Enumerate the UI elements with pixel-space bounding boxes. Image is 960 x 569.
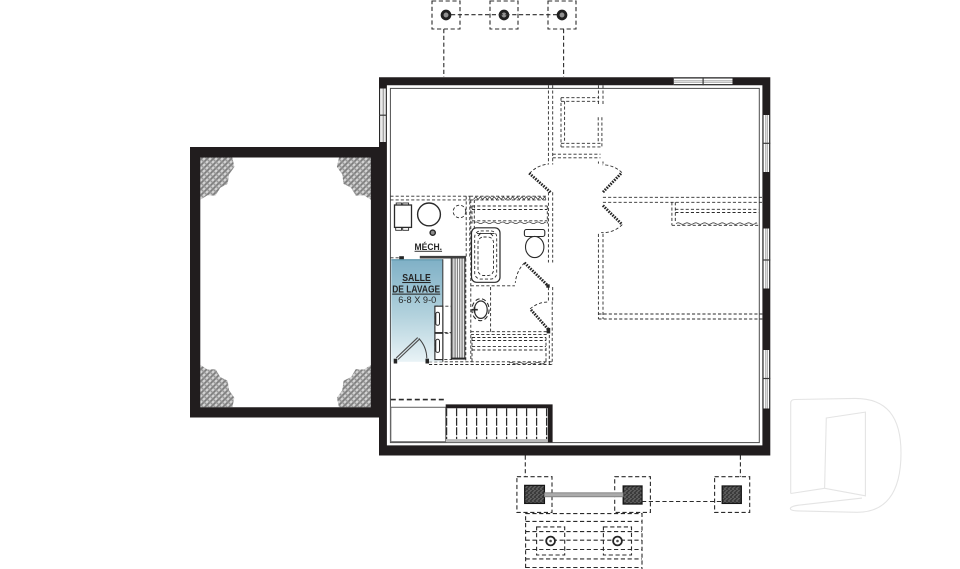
svg-text:6-8 X 9-0: 6-8 X 9-0 bbox=[398, 295, 436, 305]
svg-text:SALLE: SALLE bbox=[402, 272, 431, 284]
svg-text:MÉCH.: MÉCH. bbox=[415, 242, 443, 253]
svg-text:DE LAVAGE: DE LAVAGE bbox=[392, 284, 440, 296]
